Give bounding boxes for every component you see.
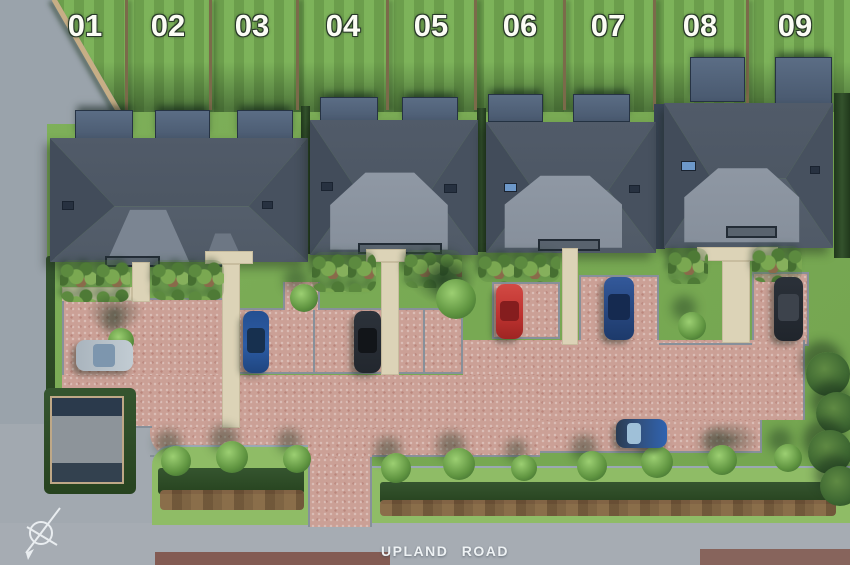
- plot-number-09: 09: [763, 8, 827, 44]
- rear-shed: [237, 110, 293, 141]
- footpath: [381, 262, 399, 375]
- porch-eave: [726, 226, 777, 238]
- tree: [577, 451, 607, 481]
- tree: [511, 455, 537, 481]
- tree: [806, 352, 850, 396]
- shrub-bed: [312, 252, 376, 292]
- plot-number-08: 08: [668, 8, 732, 44]
- footpath: [722, 261, 750, 343]
- north-arrow-compass-icon: [14, 503, 70, 563]
- rooflight: [321, 182, 333, 191]
- tree: [816, 392, 850, 434]
- car-windshield: [247, 328, 266, 353]
- fence-line: [296, 0, 299, 110]
- house-1: [50, 138, 308, 262]
- site-entrance-drive: [308, 457, 372, 527]
- rear-shed: [75, 110, 133, 141]
- site-plan-render: 01 02 03 04 05 06 07 08 09: [0, 0, 850, 565]
- tree: [436, 279, 476, 319]
- rear-shed: [155, 110, 210, 141]
- tree-shadow: [86, 292, 144, 332]
- tree: [774, 444, 802, 472]
- car-windshield: [358, 328, 377, 353]
- shrub-bed: [668, 248, 708, 284]
- car-windshield: [500, 301, 519, 322]
- outbuilding: [50, 396, 124, 484]
- fence-line: [386, 0, 389, 110]
- rear-garage: [690, 57, 745, 102]
- fence-line: [563, 0, 566, 110]
- tree: [161, 446, 191, 476]
- tree: [216, 441, 248, 473]
- footpath: [222, 264, 240, 428]
- tree: [381, 453, 411, 483]
- court-edge-line: [659, 343, 752, 345]
- fence-line: [746, 0, 749, 110]
- plot-number-06: 06: [488, 8, 552, 44]
- plot-divider-hedge: [477, 108, 486, 252]
- rear-shed: [573, 94, 630, 122]
- outbuilding-roof-shadow: [52, 398, 122, 416]
- rooflight: [262, 201, 273, 209]
- car-windshield: [608, 294, 630, 320]
- fence-line: [474, 0, 477, 110]
- rooflight: [444, 184, 457, 193]
- tree: [283, 445, 311, 473]
- tree: [443, 448, 475, 480]
- plot-number-01: 01: [53, 8, 117, 44]
- rooflight: [629, 185, 640, 193]
- right-boundary-hedge: [834, 93, 850, 258]
- car-blue-2: [616, 419, 667, 448]
- car-windshield: [93, 344, 115, 368]
- tree: [290, 284, 318, 312]
- tree: [678, 312, 706, 340]
- road-name-label: UPLAND ROAD: [335, 543, 555, 559]
- plot-number-02: 02: [136, 8, 200, 44]
- rooflight: [810, 166, 820, 174]
- verge-scrub: [160, 490, 304, 510]
- tree: [707, 445, 737, 475]
- car-black-2: [774, 277, 803, 341]
- plot-number-03: 03: [220, 8, 284, 44]
- car-windshield: [627, 423, 641, 443]
- fence-line: [125, 0, 128, 110]
- fence-line: [209, 0, 212, 110]
- boundary-wall: [700, 549, 850, 565]
- bay-divider-line: [313, 308, 315, 374]
- car-blue: [243, 311, 269, 373]
- footpath: [562, 248, 578, 345]
- tree: [641, 446, 673, 478]
- rooflight: [62, 201, 74, 210]
- shrub-bed: [152, 260, 224, 300]
- plot-number-07: 07: [576, 8, 640, 44]
- rear-garage: [775, 57, 832, 104]
- car-red: [496, 284, 523, 339]
- fence-line: [653, 0, 656, 110]
- rooflight-blue: [681, 161, 696, 171]
- car-windshield: [778, 294, 799, 321]
- bay-divider-line: [423, 308, 425, 374]
- car-silver: [76, 340, 133, 371]
- outbuilding-roof-shadow: [52, 463, 122, 482]
- verge-scrub: [380, 500, 836, 516]
- parking-bays-center: [235, 308, 463, 374]
- rear-shed: [488, 94, 543, 122]
- plot-number-04: 04: [311, 8, 375, 44]
- car-dark-blue: [604, 277, 634, 340]
- shrub-bed: [478, 252, 560, 282]
- rooflight-blue: [504, 183, 517, 192]
- car-black: [354, 311, 381, 373]
- plot-number-05: 05: [399, 8, 463, 44]
